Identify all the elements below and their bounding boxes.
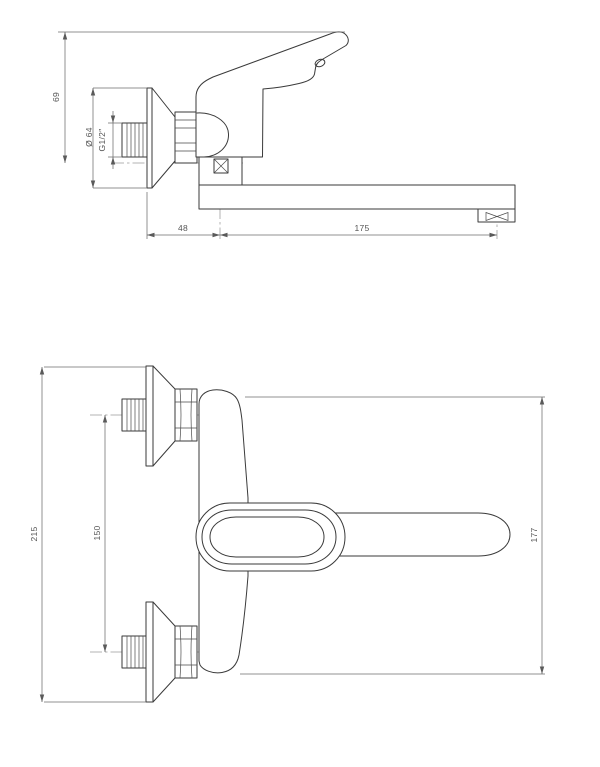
spout: [199, 185, 515, 222]
upper-hex-nut: [175, 389, 197, 441]
technical-drawing: 69 Ø 64 G1/2″ 48 175: [0, 0, 600, 767]
dim-label-thread: G1/2″: [97, 129, 107, 152]
upper-escutcheon: [146, 366, 175, 466]
faucet-body: [196, 32, 348, 157]
dim-label-wall-offset: 48: [178, 223, 188, 233]
side-view: 69 Ø 64 G1/2″ 48 175: [51, 32, 515, 239]
spout-collar: [199, 157, 242, 185]
plan-lever-handle: [196, 503, 345, 571]
handle-cap-outer: [196, 503, 345, 571]
upper-connection: [122, 366, 197, 466]
lower-escutcheon: [146, 602, 175, 702]
lower-hex-nut: [175, 626, 197, 678]
dim-label-flange-diameter: Ø 64: [84, 127, 94, 147]
dim-label-height: 69: [51, 92, 61, 102]
hex-nut: [175, 112, 197, 163]
set-screw: [214, 159, 228, 173]
plan-view: 215 150 177: [29, 366, 545, 702]
spout-arm: [199, 185, 515, 209]
upper-thread-nipple: [122, 399, 146, 431]
body-handle-silhouette: [196, 32, 348, 157]
lower-thread-nipple: [122, 636, 146, 668]
thread-nipple: [122, 123, 147, 157]
plan-spout: [330, 513, 510, 556]
dimension-centers-150: 150: [92, 415, 107, 652]
aerator: [478, 209, 515, 222]
drawing-canvas: 69 Ø 64 G1/2″ 48 175: [0, 0, 600, 767]
dimension-thread: G1/2″: [97, 111, 122, 169]
dim-label-overall: 215: [29, 526, 39, 541]
dim-label-length: 177: [529, 527, 539, 542]
escutcheon: [147, 88, 175, 188]
dim-label-spout-reach: 175: [354, 223, 369, 233]
lower-connection: [122, 602, 197, 702]
dim-label-centers: 150: [92, 525, 102, 540]
